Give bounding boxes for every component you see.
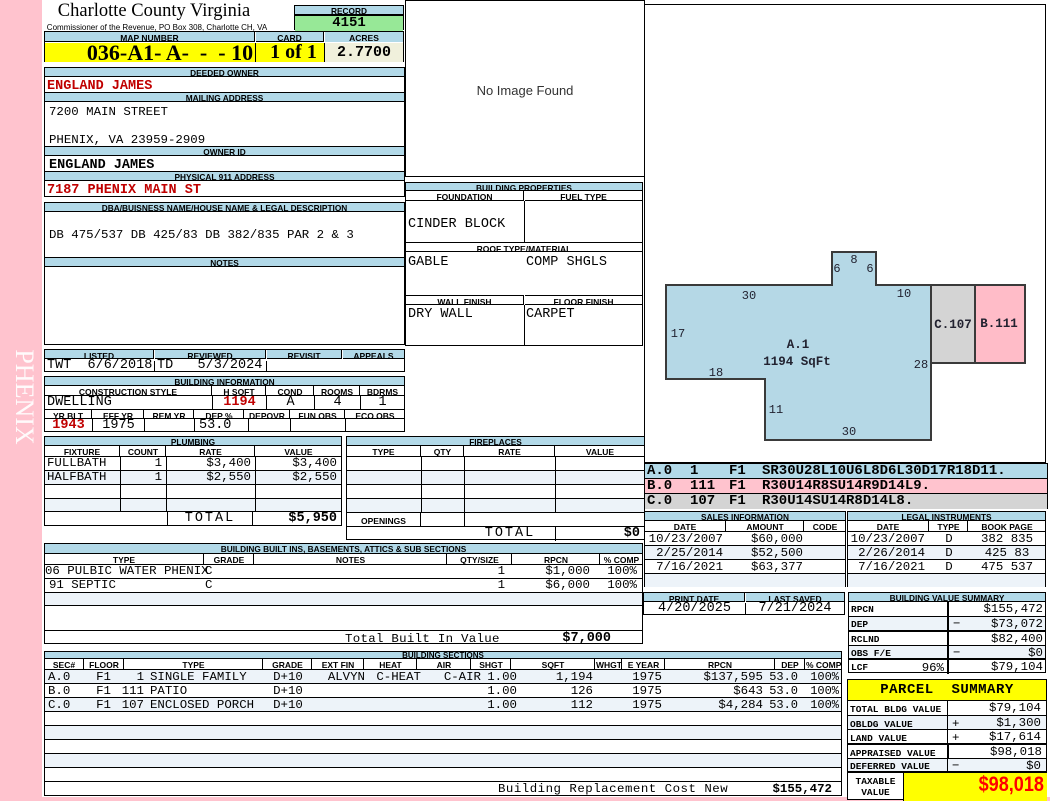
svg-text:6: 6 [866,262,873,276]
svg-text:10: 10 [897,287,911,301]
svg-text:A.1: A.1 [787,338,810,352]
svg-text:B.111: B.111 [980,317,1018,331]
svg-text:8: 8 [850,253,857,267]
svg-text:11: 11 [769,403,783,417]
svg-text:30: 30 [742,289,756,303]
svg-text:18: 18 [709,366,723,380]
svg-text:1194 SqFt: 1194 SqFt [763,355,831,369]
svg-text:6: 6 [833,262,840,276]
svg-text:17: 17 [671,327,685,341]
svg-text:28: 28 [914,358,928,372]
svg-text:30: 30 [842,425,856,439]
svg-text:C.107: C.107 [934,318,972,332]
